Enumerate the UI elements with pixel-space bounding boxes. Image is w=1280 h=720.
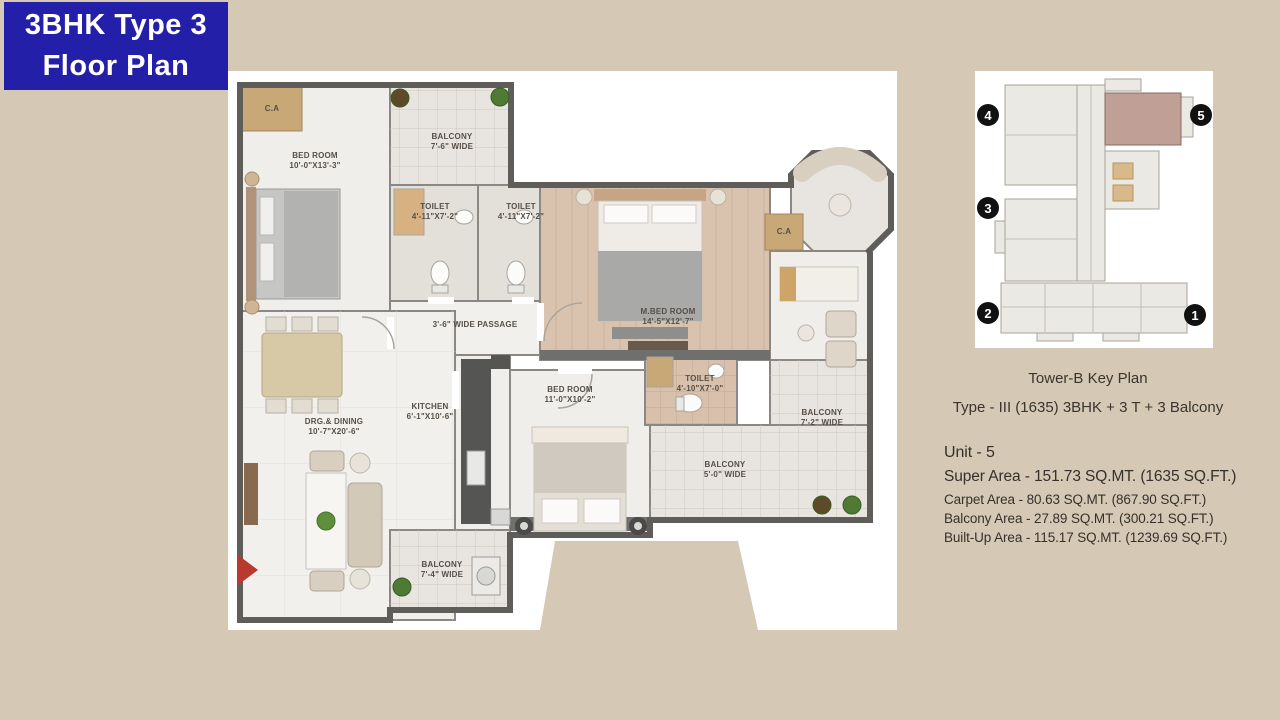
label-bedroom-top-left: BED ROOM10'-0"X13'-3"	[289, 151, 340, 171]
floor-plan-canvas: C.A BED ROOM10'-0"X13'-3" BALCONY7'-6" W…	[228, 71, 897, 630]
bed-top-left	[245, 172, 340, 314]
built-up-area: Built-Up Area - 115.17 SQ.MT. (1239.69 S…	[944, 530, 1227, 545]
unit-number: Unit - 5	[944, 444, 995, 462]
label-master-bedroom: M.BED ROOM14'-5"X12'-7"	[641, 307, 696, 327]
key-plan-subtitle: Type - III (1635) 3BHK + 3 T + 3 Balcony	[918, 399, 1258, 416]
key-plan-marker-4: 4	[977, 104, 999, 126]
dining-table	[262, 317, 342, 413]
label-ca-1: C.A	[265, 104, 279, 114]
page: 3BHK Type 3 Floor Plan	[0, 0, 1280, 720]
label-balcony-top: BALCONY7'-6" WIDE	[431, 132, 473, 152]
label-kitchen: KITCHEN6'-1"X10'-6"	[407, 402, 454, 422]
title-line-2: Floor Plan	[43, 46, 190, 87]
key-plan-unit5-highlight	[1105, 93, 1181, 145]
label-toilet-2: TOILET4'-11"X7'-2"	[498, 202, 544, 222]
washing-machine	[472, 557, 500, 595]
label-bedroom-bottom: BED ROOM11'-0"X10'-2"	[545, 385, 596, 405]
label-balcony-bottom-right: BALCONY5'-0" WIDE	[704, 460, 746, 480]
label-drg-dining: DRG.& DINING10'-7"X20'-6"	[305, 417, 363, 437]
label-balcony-bottom-left: BALCONY7'-4" WIDE	[421, 560, 463, 580]
key-plan-drawing	[975, 71, 1213, 348]
title-badge: 3BHK Type 3 Floor Plan	[4, 2, 228, 90]
label-ca-2: C.A	[777, 227, 791, 237]
super-area: Super Area - 151.73 SQ.MT. (1635 SQ.FT.)	[944, 468, 1236, 486]
background-cutout	[540, 541, 758, 630]
label-passage: 3'-6" WIDE PASSAGE	[433, 320, 518, 330]
key-plan-marker-2: 2	[977, 302, 999, 324]
title-line-1: 3BHK Type 3	[25, 5, 207, 46]
key-plan-marker-3: 3	[977, 197, 999, 219]
key-plan-marker-1: 1	[1184, 304, 1206, 326]
key-plan: 4 5 3 2 1	[975, 71, 1213, 348]
balcony-area: Balcony Area - 27.89 SQ.MT. (300.21 SQ.F…	[944, 511, 1214, 526]
key-plan-marker-5: 5	[1190, 104, 1212, 126]
key-plan-caption: Tower-B Key Plan	[938, 370, 1238, 387]
label-toilet-1: TOILET4'-11"X7'-2"	[412, 202, 458, 222]
label-toilet-3: TOILET4'-10"X7'-0"	[677, 374, 724, 394]
label-balcony-right: BALCONY7'-2" WIDE	[801, 408, 843, 428]
carpet-area: Carpet Area - 80.63 SQ.MT. (867.90 SQ.FT…	[944, 492, 1206, 507]
